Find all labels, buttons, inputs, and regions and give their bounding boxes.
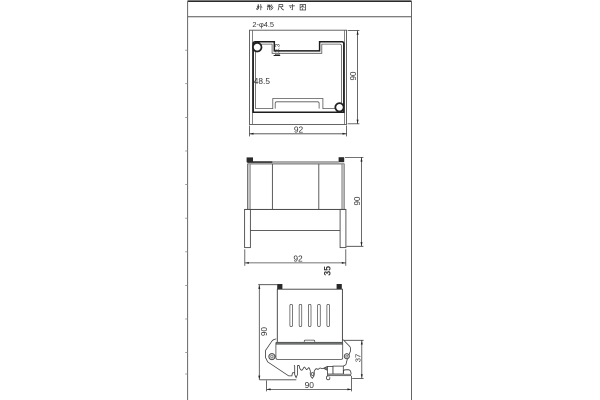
svg-text:92: 92 <box>294 125 304 135</box>
svg-text:92: 92 <box>293 254 303 264</box>
svg-text:35: 35 <box>322 266 332 276</box>
svg-text:90: 90 <box>353 196 362 205</box>
svg-text:90: 90 <box>349 71 358 80</box>
svg-text:2-φ4.5: 2-φ4.5 <box>252 20 274 29</box>
svg-text:48.5: 48.5 <box>254 76 271 86</box>
svg-text:90: 90 <box>305 380 315 390</box>
svg-text:37: 37 <box>353 354 362 362</box>
svg-text:90: 90 <box>260 327 269 336</box>
svg-text:13.3: 13.3 <box>275 43 282 56</box>
